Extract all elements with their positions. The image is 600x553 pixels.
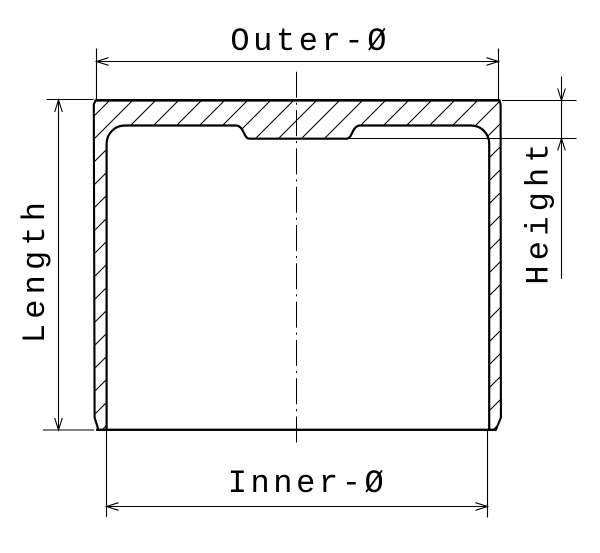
svg-text:Height: Height [521, 138, 558, 284]
svg-text:Outer-Ø: Outer-Ø [230, 23, 390, 60]
svg-text:Length: Length [17, 197, 54, 343]
svg-text:Inner-Ø: Inner-Ø [228, 465, 388, 502]
